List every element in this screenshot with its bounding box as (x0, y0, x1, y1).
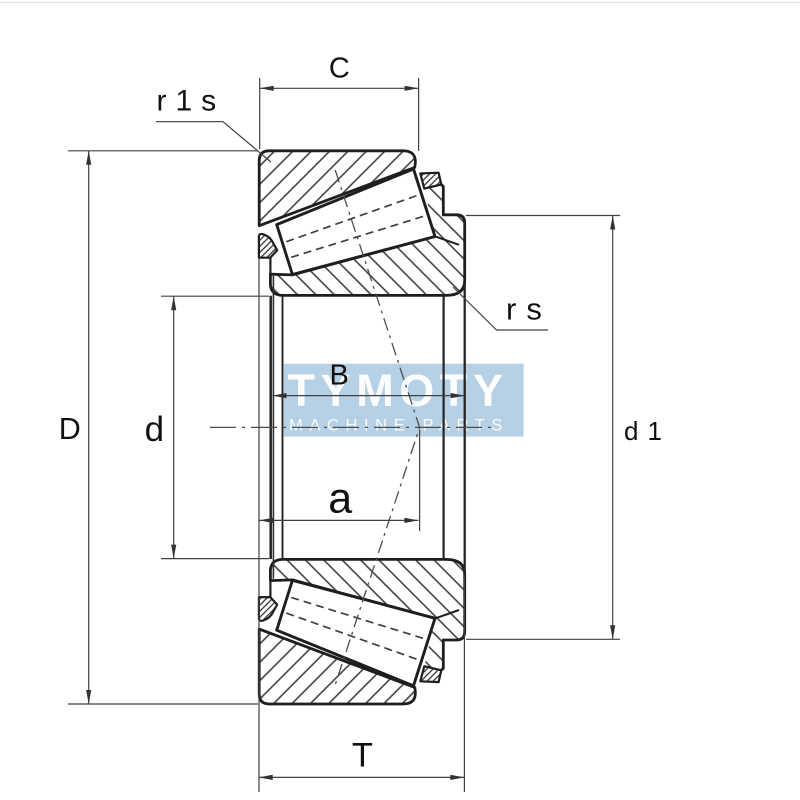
svg-text:TYMOTY: TYMOTY (288, 365, 509, 416)
svg-text:a: a (328, 475, 352, 523)
svg-text:rs: rs (506, 292, 552, 327)
svg-text:r1s: r1s (157, 85, 226, 118)
svg-text:T: T (352, 737, 373, 775)
svg-text:C: C (329, 52, 350, 84)
svg-text:B: B (330, 360, 349, 392)
svg-text:MACHINE PARTS: MACHINE PARTS (289, 417, 509, 435)
svg-text:d: d (145, 410, 164, 449)
svg-text:D: D (59, 412, 81, 446)
svg-text:d1: d1 (624, 416, 671, 446)
